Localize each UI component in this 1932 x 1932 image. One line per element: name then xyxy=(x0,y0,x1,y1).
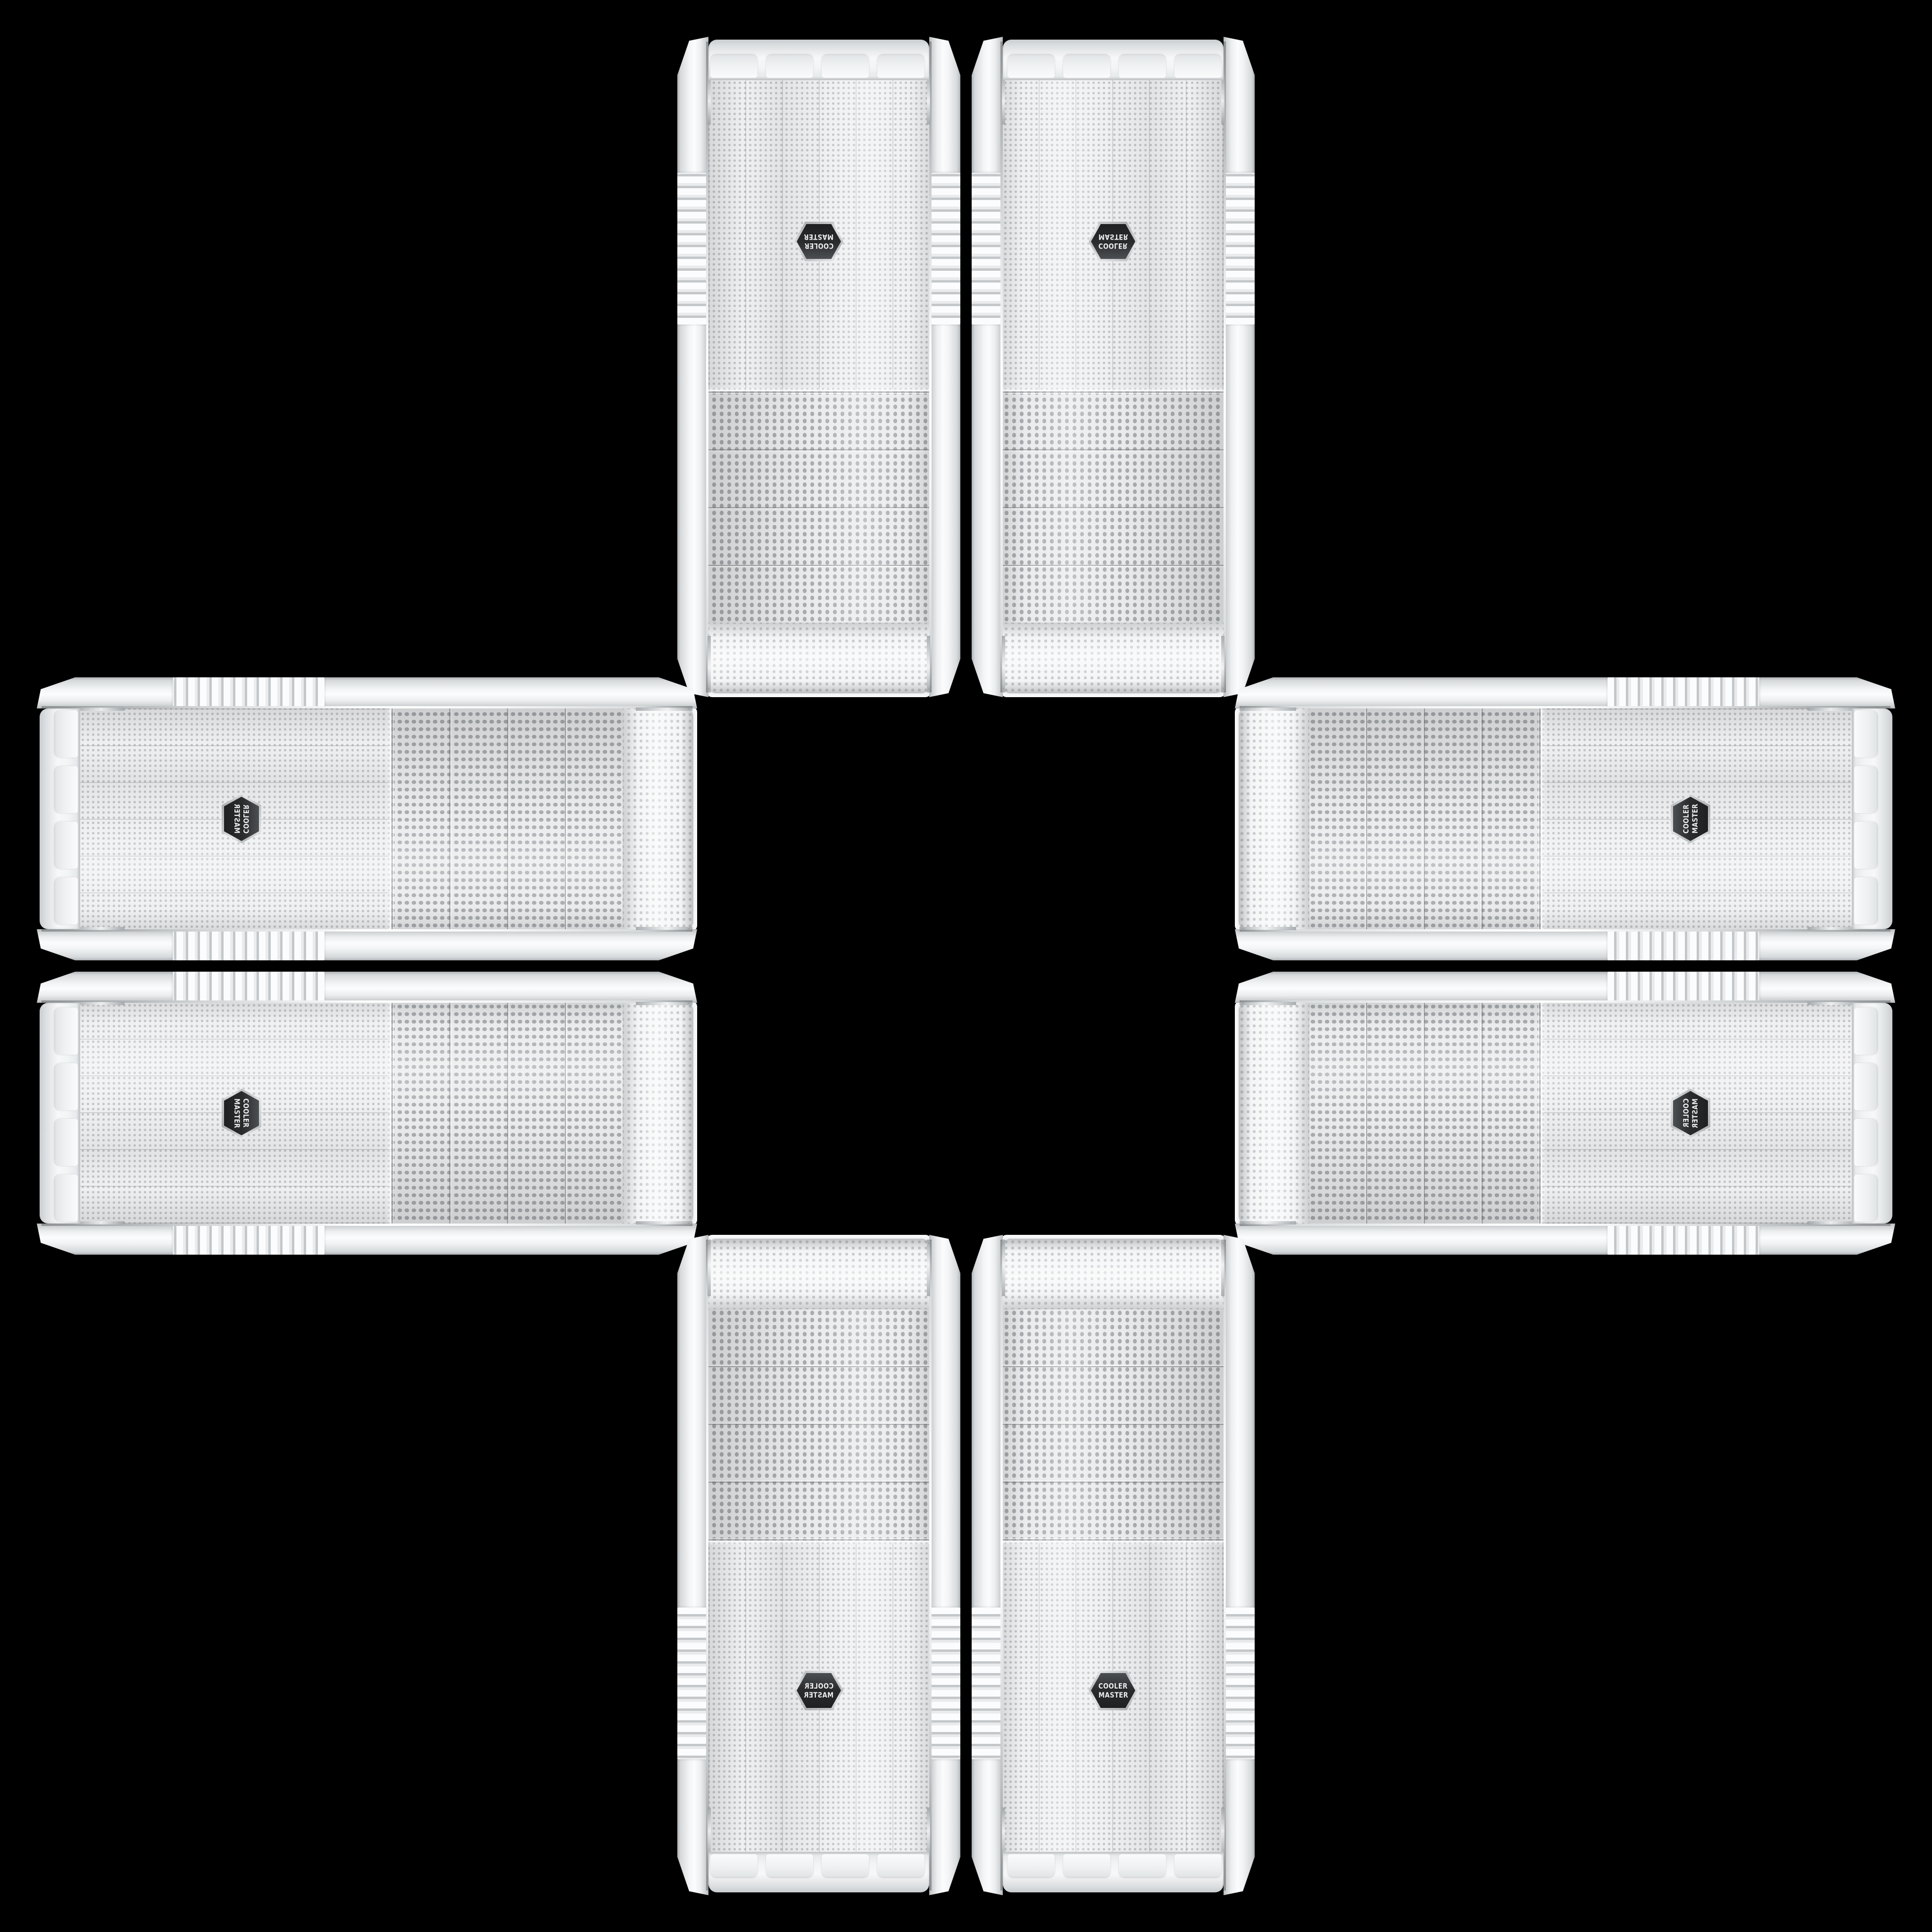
case-left-rail xyxy=(1235,972,1895,1003)
badge-panel: COOLER MASTER xyxy=(1673,797,1708,841)
foot-cap-tab xyxy=(1008,1854,1055,1877)
chrome-hinge-icon xyxy=(708,73,711,125)
foot-cap-tab xyxy=(1174,55,1222,78)
case-right-rail xyxy=(37,677,697,708)
foot-cap-tab xyxy=(55,822,78,869)
badge-text-line2: MASTER xyxy=(804,233,833,241)
foot-cap-tab xyxy=(1119,55,1166,78)
rail-grip-ribs xyxy=(173,970,325,1004)
front-panel: COOLER MASTER xyxy=(1003,40,1224,693)
rail-grip-ribs xyxy=(970,173,1004,325)
case-left-rail xyxy=(37,972,697,1003)
foot-cap-tab xyxy=(1854,877,1877,924)
chrome-hinge-icon xyxy=(1002,1240,1005,1296)
case-left-rail xyxy=(1235,929,1895,960)
top-mesh-cowl xyxy=(708,623,929,693)
case-right-rail xyxy=(677,1235,708,1895)
chrome-hinge-icon xyxy=(636,927,692,930)
rail-grip-ribs xyxy=(675,173,709,325)
foot-cap-tab xyxy=(1063,1854,1110,1877)
foot-cap-tab xyxy=(766,1854,813,1877)
chrome-hinge-icon xyxy=(73,927,125,930)
front-panel: COOLER MASTER xyxy=(1239,708,1892,929)
chrome-hinge-icon xyxy=(636,708,692,711)
foot-cap-tab xyxy=(55,710,78,758)
foot-cap-tab xyxy=(877,55,924,78)
chrome-hinge-icon xyxy=(73,1002,125,1005)
pc-case-bottom-left: COOLER MASTER xyxy=(677,1235,960,1895)
drive-bay-mesh-covers xyxy=(708,1309,929,1541)
front-panel: COOLER MASTER xyxy=(40,1003,693,1224)
foot-cap-tab xyxy=(55,1119,78,1166)
badge-panel: COOLER MASTER xyxy=(1673,1091,1708,1135)
chrome-hinge-icon xyxy=(927,73,930,125)
chrome-hinge-icon xyxy=(73,1221,125,1224)
foot-cap-tab xyxy=(710,1854,758,1877)
top-mesh-cowl xyxy=(708,1239,929,1309)
foot-cap-tab xyxy=(55,1174,78,1222)
rail-grip-ribs xyxy=(928,173,962,325)
rail-grip-ribs xyxy=(1223,173,1257,325)
foot-cap-tab xyxy=(710,55,758,78)
foot-cap-tab xyxy=(1854,1174,1877,1222)
top-mesh-cowl xyxy=(1239,1003,1309,1224)
top-mesh-cowl xyxy=(1239,708,1309,929)
badge-panel: COOLER MASTER xyxy=(797,1673,841,1708)
badge-text-line2: MASTER xyxy=(1098,1691,1128,1699)
badge-text-line1: COOLER xyxy=(1099,1682,1128,1690)
rail-grip-ribs xyxy=(173,1223,325,1257)
case-foot-cap xyxy=(1852,708,1892,929)
drive-bay-mesh-covers xyxy=(391,708,623,929)
badge-text-line2: MASTER xyxy=(1098,233,1128,241)
foot-cap-tab xyxy=(1854,1119,1877,1166)
case-right-rail xyxy=(1224,37,1255,697)
badge-text-line1: COOLER xyxy=(242,1099,250,1128)
top-mesh-cowl xyxy=(623,1003,693,1224)
rail-grip-ribs xyxy=(675,1607,709,1759)
badge-text-line1: COOLER xyxy=(804,242,833,250)
badge-text-line2: MASTER xyxy=(1691,804,1699,833)
drive-bay-mesh-covers xyxy=(708,391,929,623)
pc-case-left-bottom: COOLER MASTER xyxy=(37,972,697,1255)
badge-panel: COOLER MASTER xyxy=(797,224,841,259)
badge-panel: COOLER MASTER xyxy=(1091,224,1135,259)
chrome-hinge-icon xyxy=(927,636,930,692)
foot-cap-tab xyxy=(1174,1854,1222,1877)
chrome-hinge-icon xyxy=(1002,73,1005,125)
front-panel: COOLER MASTER xyxy=(708,40,929,693)
badge-text-line2: MASTER xyxy=(233,1098,241,1128)
foot-cap-tab xyxy=(55,1008,78,1055)
foot-cap-tab xyxy=(1854,710,1877,758)
chrome-hinge-icon xyxy=(1221,73,1224,125)
pc-case-left-top: COOLER MASTER xyxy=(37,677,697,960)
foot-cap-tab xyxy=(55,877,78,924)
foot-cap-tab xyxy=(1008,55,1055,78)
drive-bay-mesh-covers xyxy=(1003,391,1224,623)
chrome-hinge-icon xyxy=(1221,636,1224,692)
chrome-hinge-icon xyxy=(1240,927,1296,930)
chrome-hinge-icon xyxy=(1240,1002,1296,1005)
foot-cap-tab xyxy=(1854,822,1877,869)
case-left-rail xyxy=(972,37,1003,697)
chrome-hinge-icon xyxy=(1002,636,1005,692)
badge-panel: COOLER MASTER xyxy=(1091,1673,1135,1708)
chrome-hinge-icon xyxy=(927,1240,930,1296)
case-right-rail xyxy=(37,1224,697,1255)
top-mesh-cowl xyxy=(1003,1239,1224,1309)
case-foot-cap xyxy=(40,1003,80,1224)
chrome-hinge-icon xyxy=(708,636,711,692)
case-foot-cap xyxy=(1852,1003,1892,1224)
chrome-hinge-icon xyxy=(636,1002,692,1005)
case-right-rail xyxy=(1224,1235,1255,1895)
foot-cap-tab xyxy=(877,1854,924,1877)
case-left-rail xyxy=(37,929,697,960)
top-mesh-cowl xyxy=(1003,623,1224,693)
foot-cap-tab xyxy=(55,1063,78,1110)
badge-text-line2: MASTER xyxy=(1691,1098,1699,1128)
case-foot-cap xyxy=(1003,1852,1224,1892)
foot-cap-tab xyxy=(1854,1063,1877,1110)
badge-panel: COOLER MASTER xyxy=(224,797,259,841)
pc-case-bottom-right: COOLER MASTER xyxy=(972,1235,1255,1895)
foot-cap-tab xyxy=(822,55,869,78)
foot-cap-tab xyxy=(766,55,813,78)
case-left-rail xyxy=(972,1235,1003,1895)
foot-cap-tab xyxy=(1119,1854,1166,1877)
pc-case-top-right: COOLER MASTER xyxy=(972,37,1255,697)
front-panel: COOLER MASTER xyxy=(708,1239,929,1892)
badge-text-line1: COOLER xyxy=(804,1682,833,1690)
rail-grip-ribs xyxy=(173,675,325,709)
drive-bay-mesh-covers xyxy=(1309,708,1541,929)
foot-cap-tab xyxy=(1063,55,1110,78)
foot-cap-tab xyxy=(1854,1008,1877,1055)
rail-grip-ribs xyxy=(970,1607,1004,1759)
case-foot-cap xyxy=(708,1852,929,1892)
badge-text-line2: MASTER xyxy=(804,1691,833,1699)
product-collage-scene: COOLER MASTER xyxy=(0,0,1932,1932)
badge-text-line1: COOLER xyxy=(1682,804,1690,833)
case-foot-cap xyxy=(1003,40,1224,80)
rail-grip-ribs xyxy=(928,1607,962,1759)
rail-grip-ribs xyxy=(1223,1607,1257,1759)
chrome-hinge-icon xyxy=(73,708,125,711)
chrome-hinge-icon xyxy=(636,1221,692,1224)
badge-text-line2: MASTER xyxy=(233,804,241,833)
case-right-rail xyxy=(1235,677,1895,708)
case-right-rail xyxy=(677,37,708,697)
badge-text-line1: COOLER xyxy=(1099,242,1128,250)
badge-text-line1: COOLER xyxy=(1682,1099,1690,1128)
case-foot-cap xyxy=(708,40,929,80)
foot-cap-tab xyxy=(1854,766,1877,813)
chrome-hinge-icon xyxy=(1221,1240,1224,1296)
badge-panel: COOLER MASTER xyxy=(224,1091,259,1135)
chrome-hinge-icon xyxy=(1240,708,1296,711)
rail-grip-ribs xyxy=(1607,1223,1759,1257)
foot-cap-tab xyxy=(55,766,78,813)
chrome-hinge-icon xyxy=(708,1240,711,1296)
rail-grip-ribs xyxy=(1607,970,1759,1004)
front-panel: COOLER MASTER xyxy=(1239,1003,1892,1224)
drive-bay-mesh-covers xyxy=(391,1003,623,1224)
chrome-hinge-icon xyxy=(1240,1221,1296,1224)
pc-case-right-top: COOLER MASTER xyxy=(1235,677,1895,960)
rail-grip-ribs xyxy=(173,928,325,962)
pc-case-top-left: COOLER MASTER xyxy=(677,37,960,697)
pc-case-right-bottom: COOLER MASTER xyxy=(1235,972,1895,1255)
rail-grip-ribs xyxy=(1607,675,1759,709)
case-left-rail xyxy=(929,37,960,697)
drive-bay-mesh-covers xyxy=(1003,1309,1224,1541)
case-right-rail xyxy=(1235,1224,1895,1255)
case-left-rail xyxy=(929,1235,960,1895)
rail-grip-ribs xyxy=(1607,928,1759,962)
front-panel: COOLER MASTER xyxy=(1003,1239,1224,1892)
drive-bay-mesh-covers xyxy=(1309,1003,1541,1224)
front-panel: COOLER MASTER xyxy=(40,708,693,929)
foot-cap-tab xyxy=(822,1854,869,1877)
badge-text-line1: COOLER xyxy=(242,804,250,833)
top-mesh-cowl xyxy=(623,708,693,929)
case-foot-cap xyxy=(40,708,80,929)
